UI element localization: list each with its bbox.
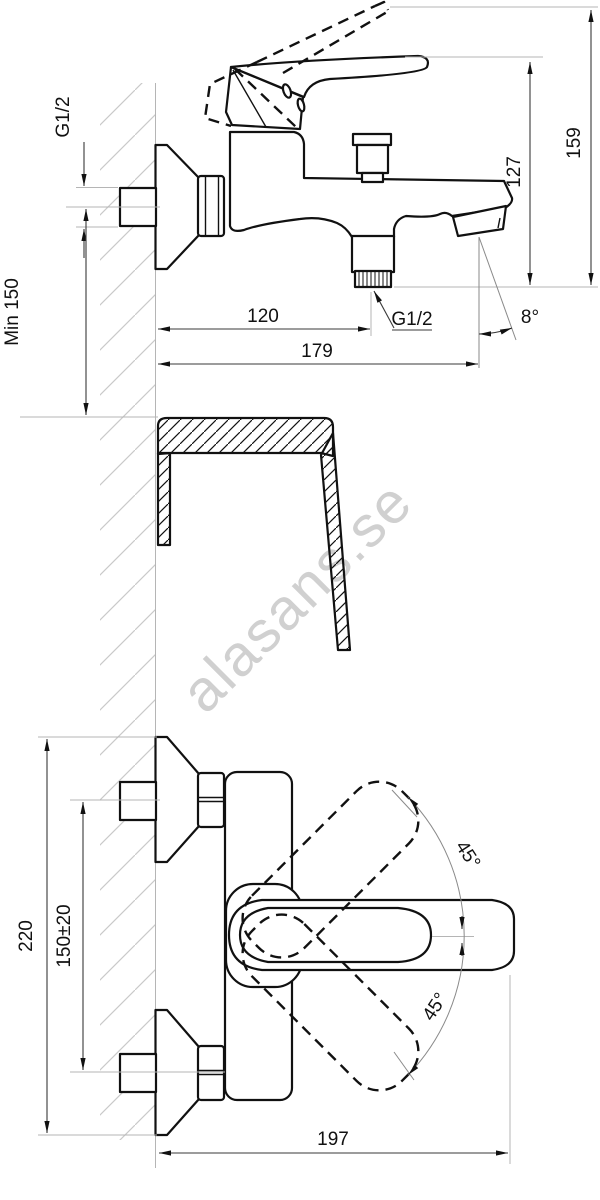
label-120: 120 (247, 306, 279, 327)
label-159: 159 (564, 127, 585, 159)
label-outlet-thread: G1/2 (391, 309, 432, 330)
diverter-body (357, 145, 388, 173)
plan-wall-pipe-bottom (120, 1054, 156, 1092)
side-escutcheon (156, 145, 200, 269)
diverter-cap (353, 134, 391, 145)
label-179: 179 (301, 341, 333, 362)
label-inlet-spacing: 150±20 (54, 904, 75, 967)
label-min-height: Min 150 (2, 278, 23, 346)
label-45-up: 45° (451, 837, 484, 873)
technical-drawing-page: alasans.se (0, 0, 600, 1200)
label-220: 220 (16, 920, 37, 952)
label-wall-thread: G1/2 (53, 96, 74, 137)
plan-escutcheon-top (156, 737, 200, 862)
shower-outlet (352, 236, 394, 272)
wall-section (100, 83, 156, 1168)
outlet-thread (355, 271, 391, 287)
side-hex-nut (198, 176, 224, 236)
tub-wall-left (158, 453, 170, 545)
label-127: 127 (504, 156, 525, 188)
side-view (120, 2, 512, 287)
label-8deg: 8° (521, 307, 539, 328)
bath-mixer-dimension-drawing: alasans.se (0, 0, 600, 1200)
plan-hex-nut-top (198, 773, 224, 827)
watermark-text: alasans.se (169, 469, 425, 725)
wall-hatching (100, 83, 155, 1140)
tub-rim-top (158, 418, 333, 456)
diverter-stem (362, 173, 383, 182)
label-45-down: 45° (419, 989, 452, 1025)
plan-wall-pipe-top (120, 782, 156, 820)
plan-hex-nut-bottom (198, 1046, 224, 1100)
label-197: 197 (317, 1129, 349, 1150)
